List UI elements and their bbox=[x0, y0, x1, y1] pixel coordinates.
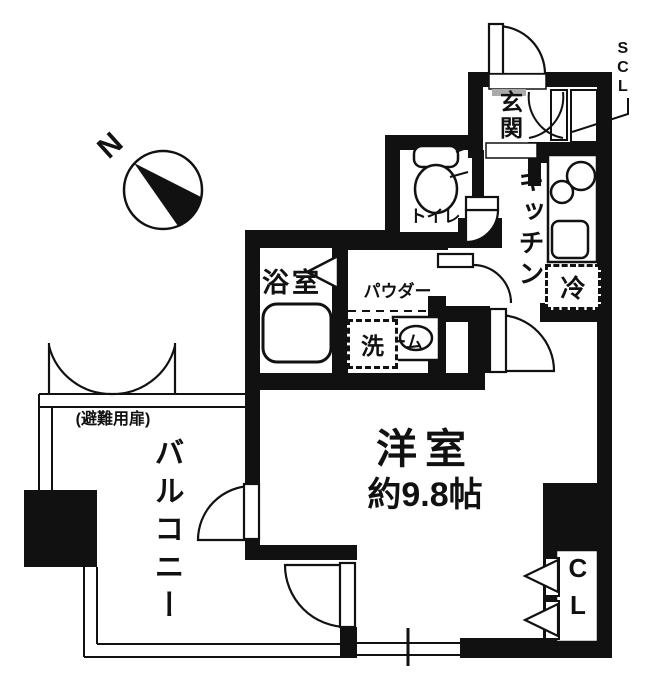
entrance-label: 玄関 bbox=[496, 90, 522, 142]
kitchen-counter bbox=[548, 155, 597, 262]
powder-room-line1: パウダー bbox=[363, 282, 431, 301]
bathtub-icon bbox=[263, 304, 331, 362]
stove-burner-icon bbox=[551, 181, 573, 203]
entrance-step bbox=[486, 143, 537, 158]
washer-label: 洗 bbox=[361, 327, 384, 361]
bathroom-label: 浴室 bbox=[254, 268, 330, 299]
evacuation-door-label: (避難用扉) bbox=[48, 411, 178, 429]
compass-icon bbox=[124, 151, 202, 229]
floor-plan-drawing bbox=[0, 0, 656, 691]
toilet-fixture bbox=[414, 146, 472, 213]
toilet-label: トイレ bbox=[400, 207, 470, 227]
main-room-name: 洋室 bbox=[330, 426, 520, 473]
fridge-box: 冷 bbox=[545, 264, 601, 310]
balcony-door-west bbox=[198, 484, 259, 540]
entrance-door bbox=[489, 24, 546, 96]
window-south bbox=[356, 628, 464, 666]
shoe-closet-label: SCL bbox=[613, 40, 631, 97]
powder-room-door bbox=[438, 254, 511, 303]
closet-label: CL bbox=[562, 553, 592, 627]
fridge-label: 冷 bbox=[560, 269, 585, 305]
evacuation-double-door bbox=[49, 343, 175, 394]
balcony-label: バルコニー bbox=[148, 437, 183, 627]
balcony-door-south bbox=[285, 563, 355, 627]
shoe-closet-doors bbox=[529, 90, 597, 142]
floor-plan: N 玄関 SCL トイレ キッチン 冷 浴室 パウダー ルーム 洗 洋室 約9.… bbox=[0, 0, 656, 691]
washer-box: 洗 bbox=[347, 319, 398, 369]
main-room-size: 約9.8帖 bbox=[323, 476, 527, 515]
kitchen-sink-icon bbox=[552, 221, 588, 258]
balcony-pillar bbox=[24, 490, 97, 567]
kitchen-label: キッチン bbox=[514, 167, 544, 291]
